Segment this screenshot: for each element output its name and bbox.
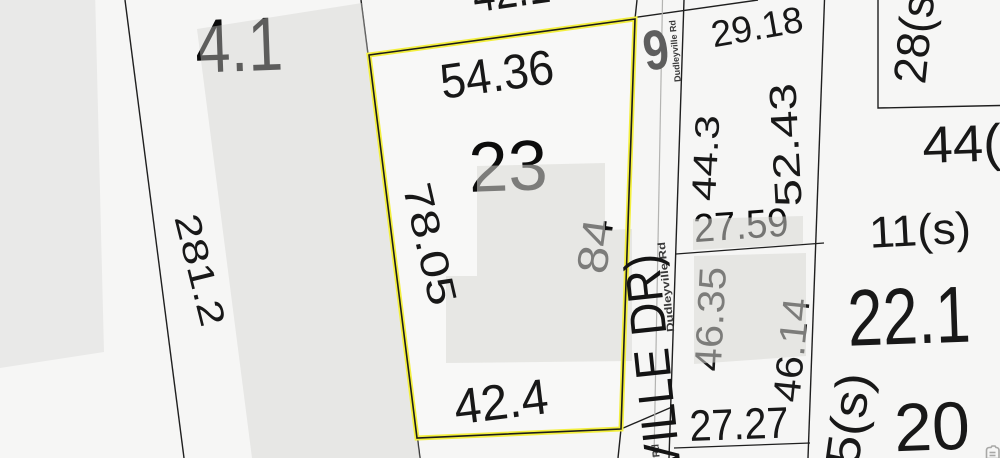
svg-text:52.43: 52.43 [762,82,811,208]
svg-text:44(s): 44(s) [921,113,1000,175]
svg-text:11(s): 11(s) [868,202,972,257]
svg-text:20: 20 [893,388,971,458]
svg-text:42.4: 42.4 [451,369,551,436]
svg-text:27.27: 27.27 [689,398,790,451]
svg-text:44.3: 44.3 [685,114,727,202]
svg-text:22.1: 22.1 [846,270,972,363]
